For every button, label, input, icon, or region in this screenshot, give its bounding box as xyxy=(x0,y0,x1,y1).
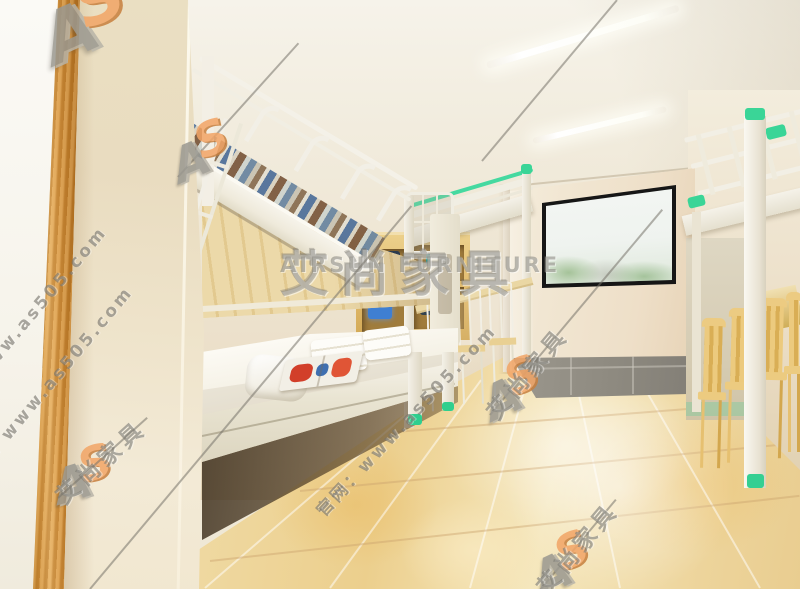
platform-grout-line xyxy=(516,365,690,370)
guardrail-support xyxy=(340,158,377,205)
guardrail-support xyxy=(244,100,281,147)
panel-edge-highlight xyxy=(177,0,191,589)
green-foot-cap xyxy=(408,414,422,425)
right-bed-front-post xyxy=(744,116,766,488)
green-foot-cap xyxy=(747,474,764,488)
chair-back-slats xyxy=(789,300,799,368)
window-glass xyxy=(546,189,672,284)
white-desk-chair xyxy=(488,282,518,393)
window xyxy=(542,185,676,288)
wooden-chair xyxy=(698,318,726,469)
guardrail-support xyxy=(294,130,331,177)
magazine-art xyxy=(288,363,314,383)
headboard-bar xyxy=(422,195,424,251)
chair-legs xyxy=(461,352,484,405)
wooden-chair xyxy=(786,292,800,452)
green-post-cap xyxy=(745,108,765,120)
chair-seat xyxy=(784,366,800,374)
bed-end-frame xyxy=(430,214,460,344)
magazine-art xyxy=(330,357,353,378)
chair-legs xyxy=(700,400,722,469)
green-foot-cap xyxy=(442,402,454,411)
platform-grout-line xyxy=(570,357,572,395)
chair-legs xyxy=(788,374,800,452)
chair-back-slats xyxy=(703,326,723,394)
white-desk-chair xyxy=(457,289,487,404)
loft-bed-post xyxy=(522,172,531,358)
green-post-cap xyxy=(521,164,532,174)
dormitory-room-render: 艾尚家具 AIRSUN FURNITURE A S A S 官网：www.as5… xyxy=(0,0,800,589)
folded-linen-stack xyxy=(362,325,411,360)
chair-legs xyxy=(492,345,515,398)
foreground-panel xyxy=(60,0,210,589)
platform-grout-line xyxy=(632,356,634,394)
bed-end-opening xyxy=(438,254,452,314)
